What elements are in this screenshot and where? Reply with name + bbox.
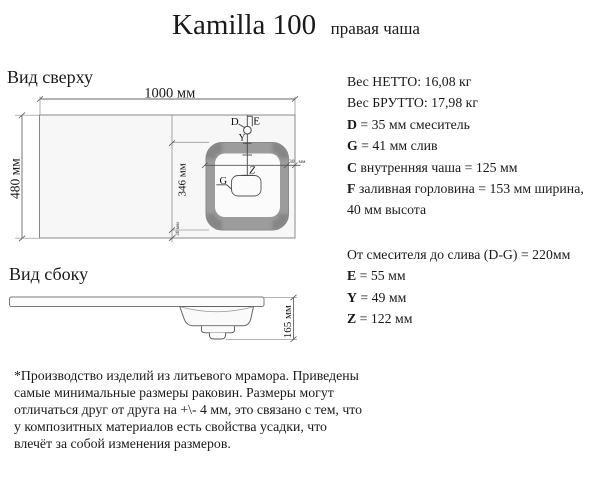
svg-text:Y: Y (239, 134, 246, 144)
svg-text:Z: Z (249, 165, 255, 176)
svg-text:30 мм: 30 мм (175, 222, 181, 236)
svg-text:D: D (231, 116, 239, 128)
svg-text:346 мм: 346 мм (177, 163, 189, 196)
svg-text:165 мм: 165 мм (282, 305, 294, 338)
svg-text:мм: мм (299, 159, 306, 165)
svg-text:30: 30 (289, 159, 295, 165)
svg-text:E: E (253, 116, 260, 128)
svg-text:1000 мм: 1000 мм (144, 86, 195, 102)
svg-text:480 мм: 480 мм (8, 158, 23, 199)
